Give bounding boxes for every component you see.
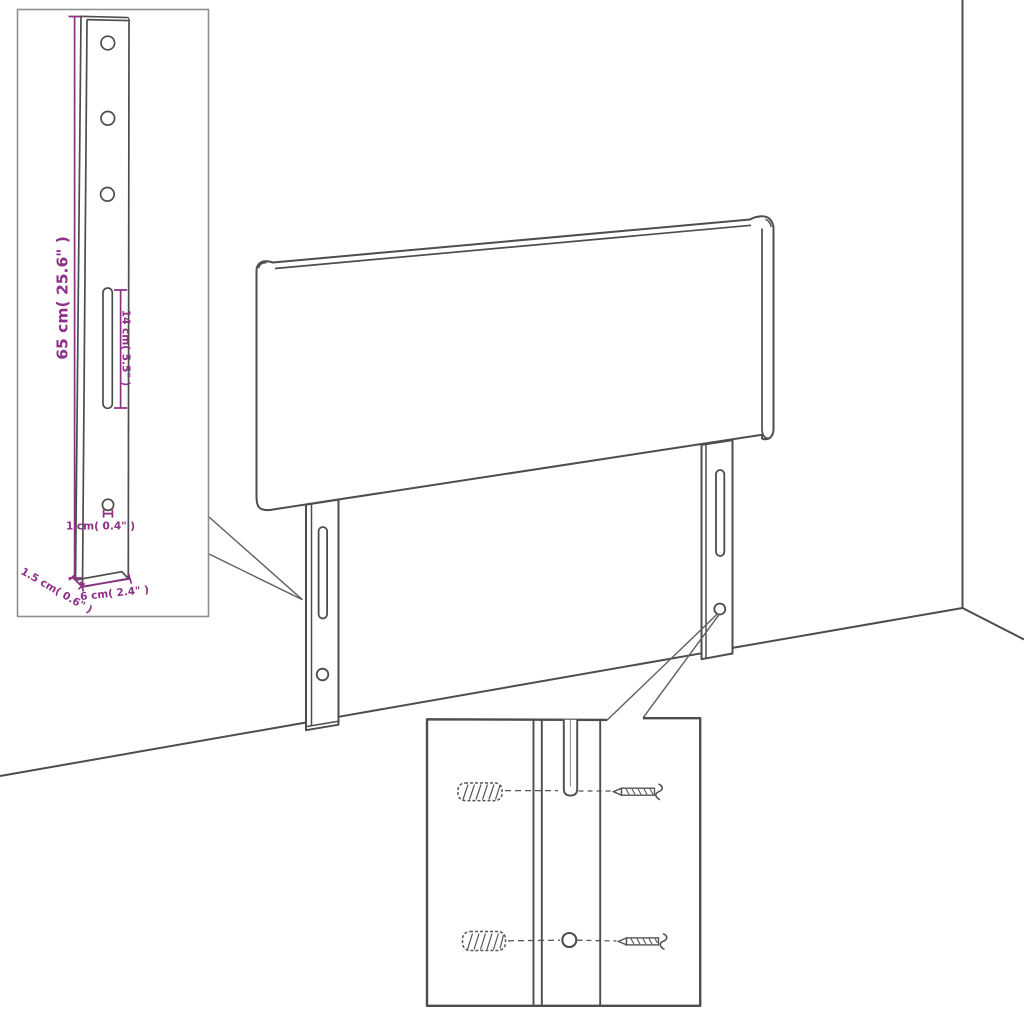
left-leg-slot [319, 527, 328, 619]
dim-label-hole-diameter: 1 cm( 0.4" ) [66, 521, 135, 533]
detail-hole [562, 933, 576, 947]
bracket-right-edge [128, 19, 129, 579]
bracket-top-inner-edge [87, 20, 129, 21]
leg-detail-inset: 65 cm( 25.6" ) 14 cm( 5.5" ) 1 cm( 0.4" … [18, 10, 209, 617]
right-leg [702, 440, 733, 659]
headboard-dimension-diagram: 65 cm( 25.6" ) 14 cm( 5.5" ) 1 cm( 0.4" … [0, 0, 1024, 1024]
dim-label-leg-height: 65 cm( 25.6" ) [54, 236, 72, 360]
right-leg-hole [714, 604, 725, 615]
diagram-canvas: 65 cm( 25.6" ) 14 cm( 5.5" ) 1 cm( 0.4" … [0, 0, 1024, 1024]
right-leg-slot [716, 470, 724, 556]
mounting-detail-inset [427, 718, 700, 1006]
left-leg [306, 500, 339, 731]
left-leg-hole [317, 669, 329, 681]
dim-label-slot-length: 14 cm( 5.5" ) [120, 310, 132, 386]
